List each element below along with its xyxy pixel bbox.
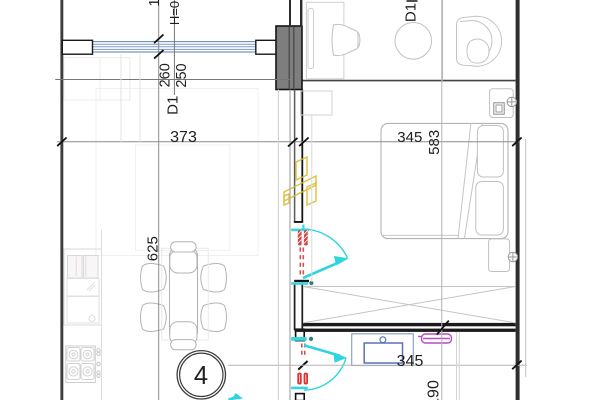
svg-text:D1: D1	[403, 3, 420, 22]
svg-text:D1: D1	[165, 96, 182, 115]
svg-text:625: 625	[145, 236, 162, 261]
svg-text:H=0: H=0	[167, 1, 182, 25]
svg-text:373: 373	[170, 129, 197, 146]
svg-text:1: 1	[146, 0, 163, 7]
svg-text:583: 583	[426, 130, 443, 155]
svg-text:345: 345	[397, 353, 424, 370]
svg-text:345: 345	[397, 129, 422, 146]
svg-text:4: 4	[194, 362, 208, 390]
svg-text:190: 190	[426, 380, 443, 400]
svg-text:250: 250	[174, 63, 190, 87]
svg-text:260: 260	[158, 63, 174, 87]
